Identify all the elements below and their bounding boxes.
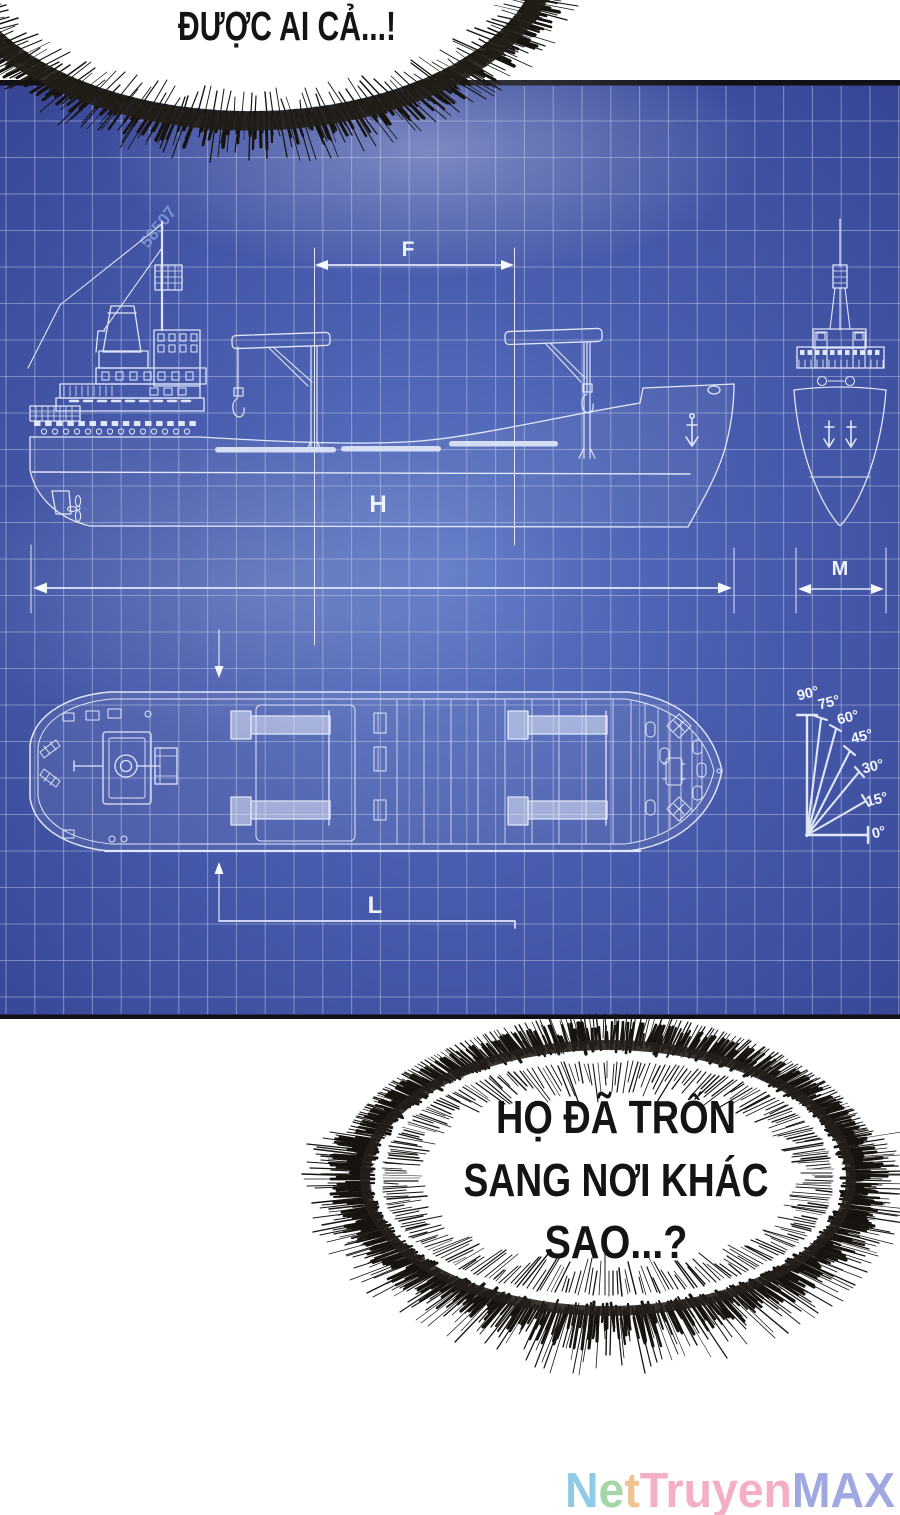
svg-text:M: M <box>832 558 849 580</box>
svg-text:SAO...?: SAO...? <box>545 1216 688 1268</box>
svg-text:SANG NƠI KHÁC: SANG NƠI KHÁC <box>464 1154 769 1206</box>
svg-text:ĐƯỢC AI CẢ...!: ĐƯỢC AI CẢ...! <box>178 3 396 49</box>
svg-text:L: L <box>368 892 383 919</box>
svg-text:HỌ ĐÃ TRỐN: HỌ ĐÃ TRỐN <box>496 1091 736 1143</box>
svg-text:NetTruyenMAX: NetTruyenMAX <box>565 1464 895 1515</box>
svg-text:F: F <box>402 238 415 261</box>
svg-text:H: H <box>369 491 386 518</box>
